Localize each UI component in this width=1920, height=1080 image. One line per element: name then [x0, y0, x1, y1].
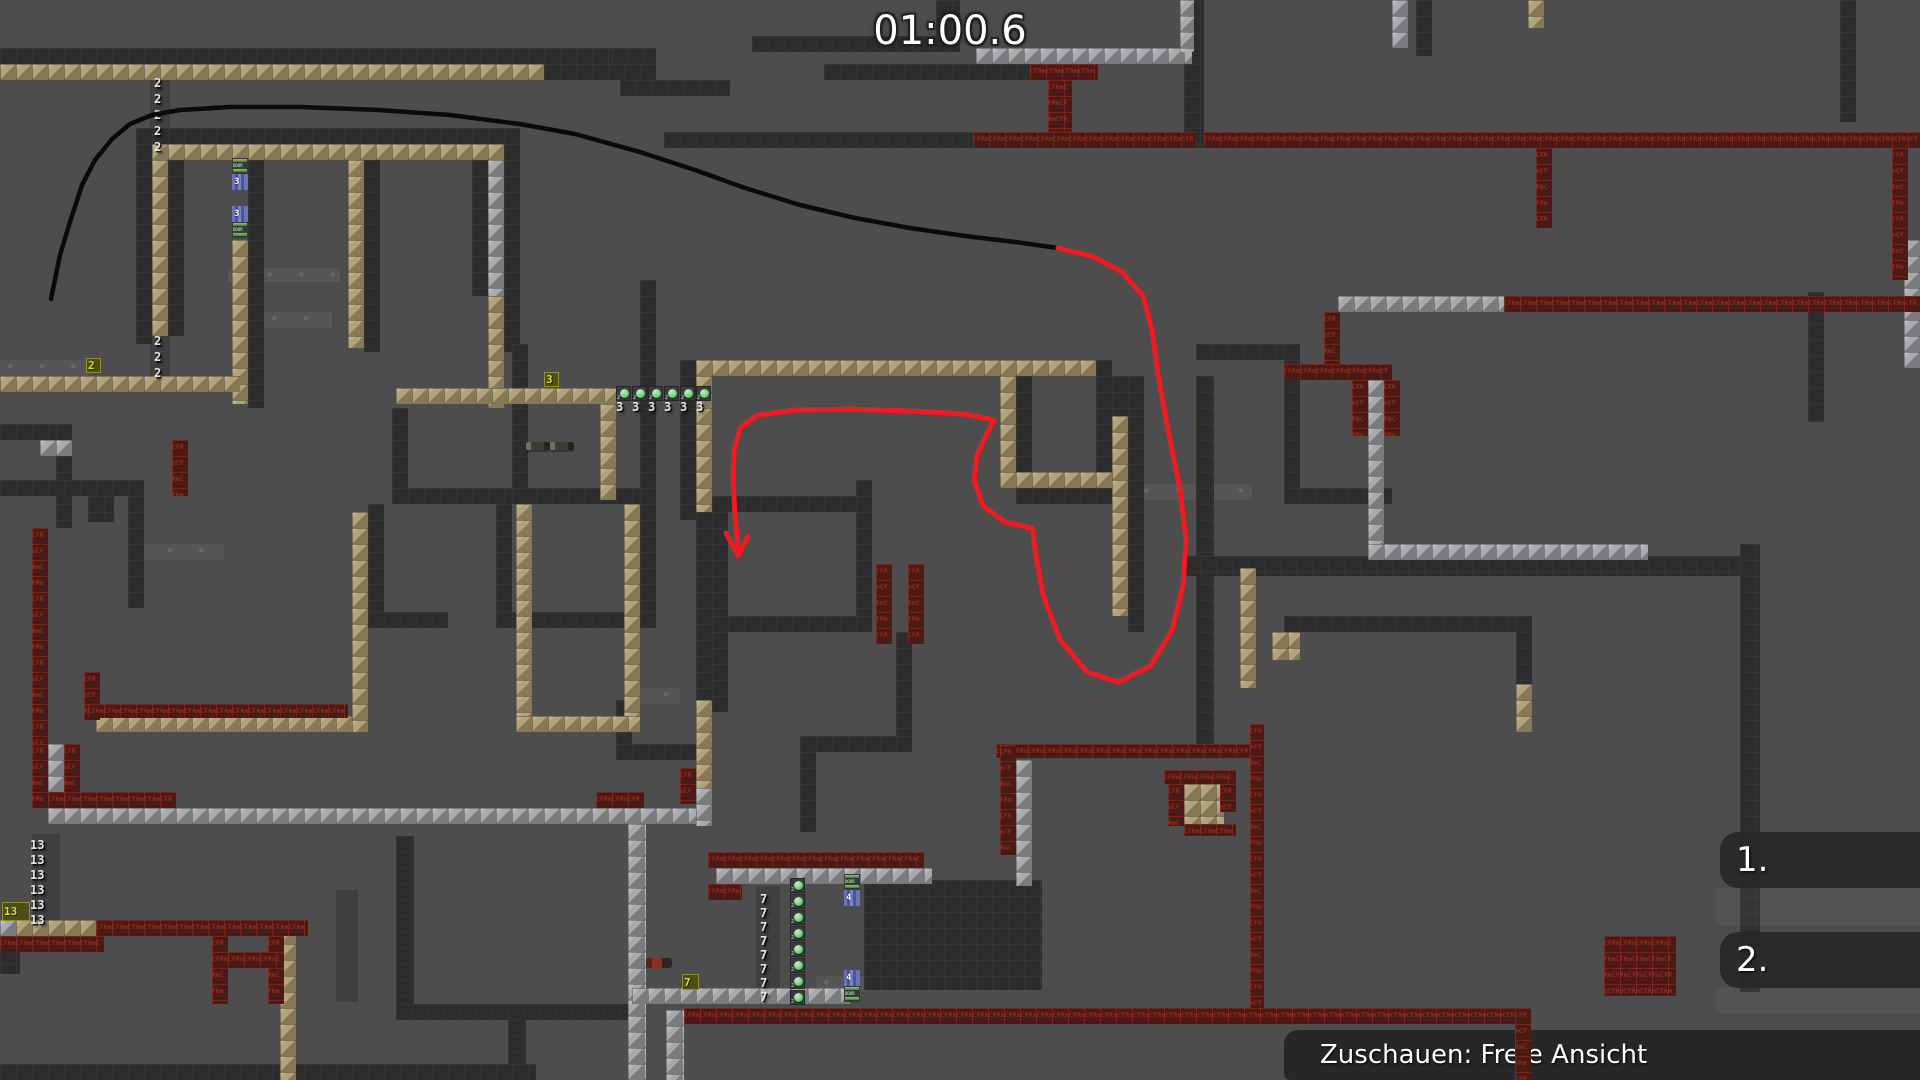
game-screen: ✶ ✶ ✶ ✶ ✶ ✶ ✶ ✶ ✶ ✶ ✶ ✶ ✶ ✶ ✶ ✶ ✶ ✶ ✶ ✶ … — [0, 0, 1920, 1080]
foreground-tiles: CFRmCFRmCFRmCFRmCFRmCFRmCFRm — [0, 0, 1920, 1080]
freeze-tile-block: CFRmCFRmCFRmCFRmCFRmCFRmCFRm — [1515, 1008, 1531, 1080]
